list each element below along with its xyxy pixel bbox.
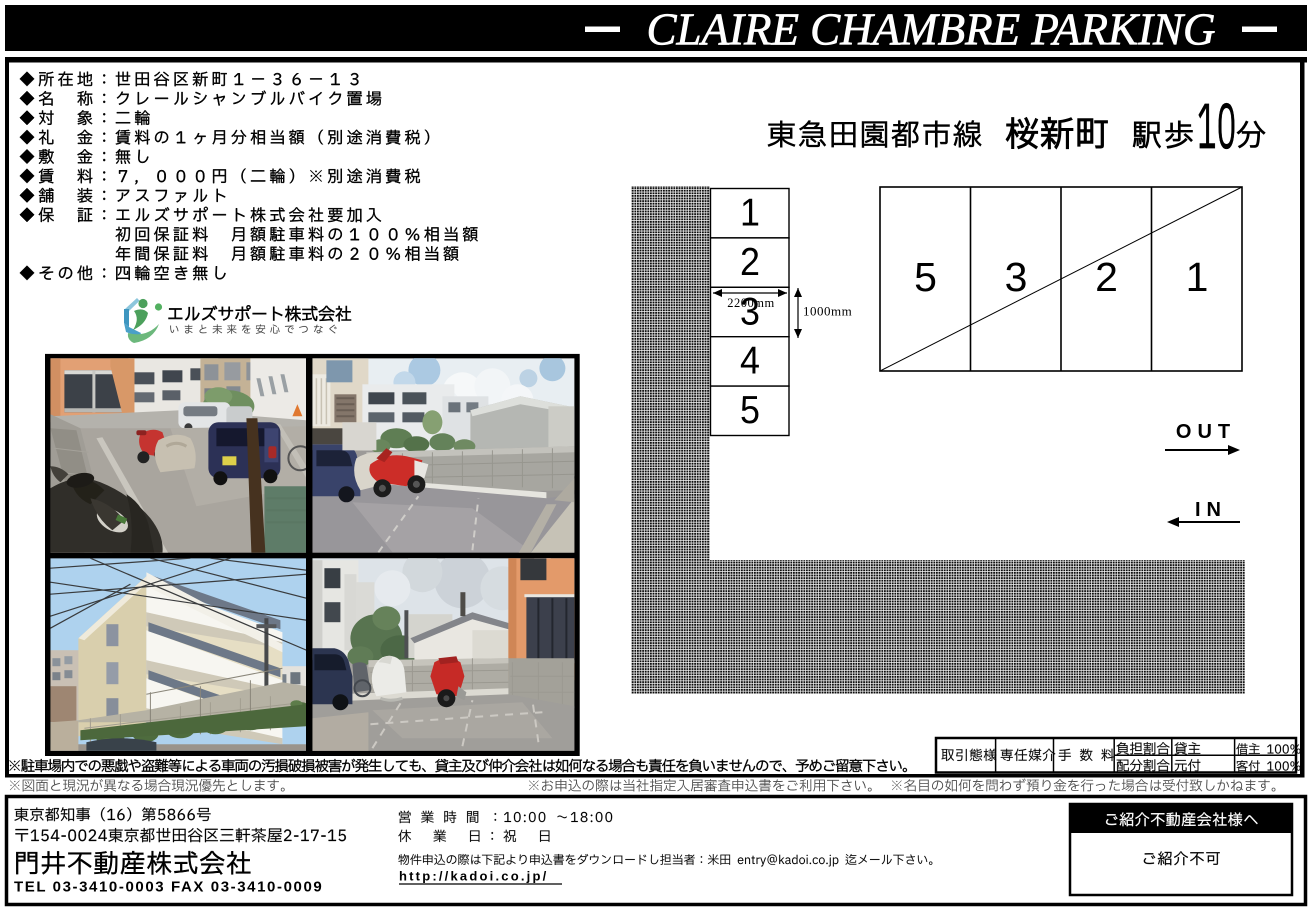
svg-text:1000mm: 1000mm <box>803 304 852 319</box>
svg-text:TEL 03-3410-0003 FAX 03-3410-: TEL 03-3410-0003 FAX 03-3410-0009 <box>14 879 323 896</box>
svg-text:4: 4 <box>740 338 760 382</box>
svg-text:1: 1 <box>1186 254 1209 300</box>
svg-text:5: 5 <box>914 254 937 300</box>
svg-text:3: 3 <box>1005 254 1028 300</box>
svg-text:2: 2 <box>1095 254 1118 300</box>
svg-text:OUT: OUT <box>1176 421 1236 443</box>
svg-text:3: 3 <box>740 289 760 333</box>
svg-text:2: 2 <box>740 240 760 284</box>
svg-text:1: 1 <box>740 190 760 234</box>
svg-text:IN: IN <box>1195 499 1227 521</box>
svg-text:5: 5 <box>740 388 760 432</box>
svg-text:CLAIRE CHAMBRE PARKING: CLAIRE CHAMBRE PARKING <box>646 5 1215 55</box>
svg-text:http://kadoi.co.jp/: http://kadoi.co.jp/ <box>399 869 548 884</box>
